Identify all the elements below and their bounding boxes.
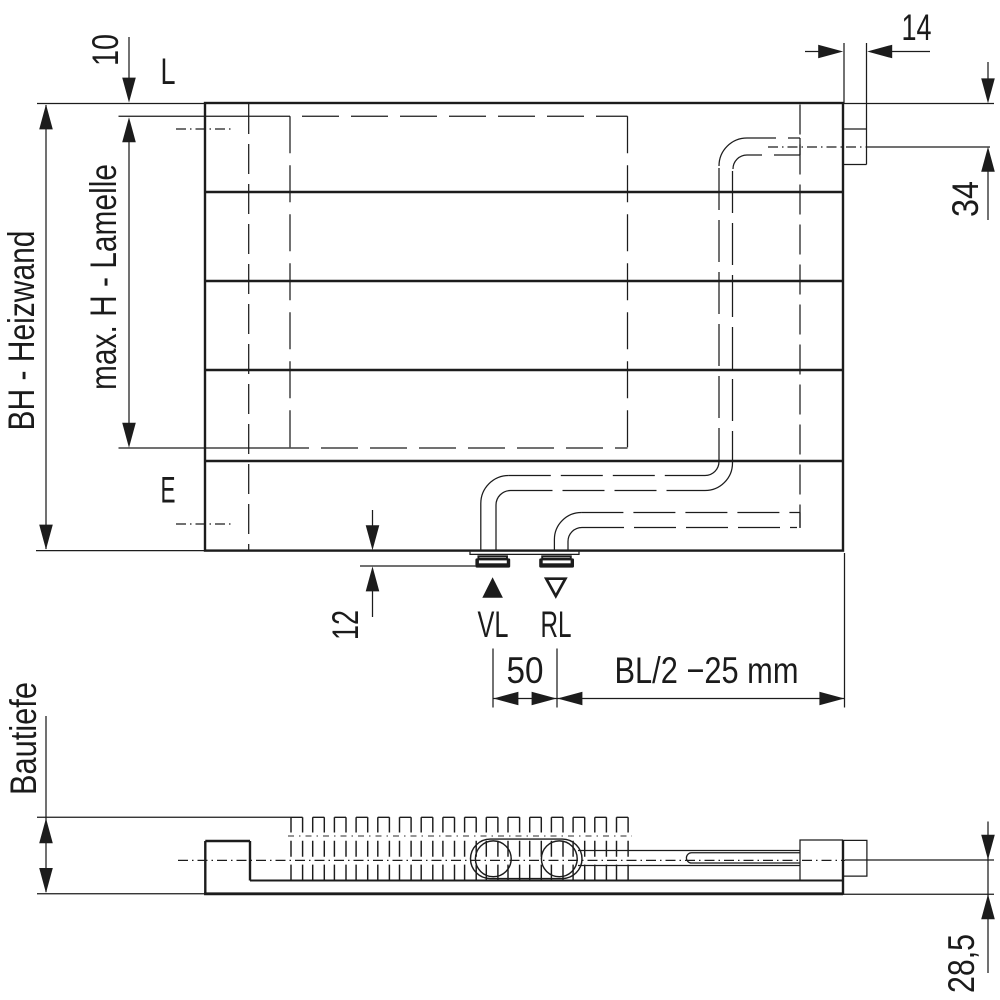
svg-text:E: E bbox=[161, 470, 176, 511]
svg-text:L: L bbox=[161, 51, 176, 92]
svg-text:BL/2 −25 mm: BL/2 −25 mm bbox=[615, 650, 799, 691]
svg-text:max. H - Lamelle: max. H - Lamelle bbox=[83, 164, 124, 390]
svg-text:34: 34 bbox=[945, 181, 986, 217]
svg-text:28,5: 28,5 bbox=[941, 934, 982, 993]
svg-text:14: 14 bbox=[902, 7, 932, 48]
svg-text:RL: RL bbox=[541, 604, 572, 645]
svg-text:10: 10 bbox=[85, 34, 126, 66]
svg-text:12: 12 bbox=[325, 610, 366, 640]
svg-text:Bautiefe: Bautiefe bbox=[3, 682, 44, 795]
svg-text:BH - Heizwand: BH - Heizwand bbox=[1, 231, 42, 431]
svg-text:VL: VL bbox=[478, 604, 509, 645]
svg-text:50: 50 bbox=[507, 650, 544, 691]
